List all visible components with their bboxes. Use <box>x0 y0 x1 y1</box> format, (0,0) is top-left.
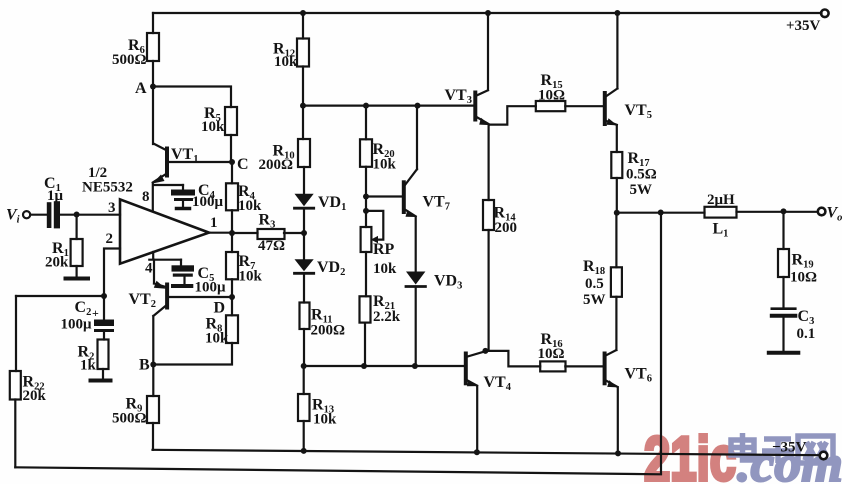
svg-text:VT5: VT5 <box>625 102 652 121</box>
svg-text:10k: 10k <box>373 157 397 173</box>
svg-text:10k: 10k <box>205 331 229 347</box>
svg-text:20k: 20k <box>45 255 69 271</box>
svg-text:8: 8 <box>142 189 150 205</box>
svg-text:4: 4 <box>145 261 153 277</box>
svg-text:C2: C2 <box>75 299 92 318</box>
svg-text:R19: R19 <box>792 252 814 271</box>
svg-text:R3: R3 <box>259 212 276 231</box>
svg-text:RP: RP <box>373 241 395 258</box>
svg-text:+35V: +35V <box>786 18 821 34</box>
svg-text:10Ω: 10Ω <box>538 346 565 362</box>
svg-text:0.1: 0.1 <box>797 326 816 342</box>
svg-text:1k: 1k <box>80 358 97 374</box>
svg-text:−35V: −35V <box>772 440 807 456</box>
svg-text:2μH: 2μH <box>707 192 735 208</box>
svg-text:100μ: 100μ <box>61 317 93 333</box>
svg-text:D: D <box>214 300 226 317</box>
svg-text:VT3: VT3 <box>445 87 472 106</box>
svg-text:B: B <box>139 357 150 374</box>
svg-text:100μ: 100μ <box>192 194 224 210</box>
svg-text:10k: 10k <box>201 119 225 135</box>
svg-text:VD3: VD3 <box>434 273 462 292</box>
svg-text:VT6: VT6 <box>625 366 652 385</box>
svg-text:10Ω: 10Ω <box>538 88 565 104</box>
svg-text:200: 200 <box>495 220 518 236</box>
svg-text:+: + <box>92 306 99 320</box>
svg-text:10k: 10k <box>373 261 397 277</box>
svg-text:L1: L1 <box>713 221 729 240</box>
svg-text:200Ω: 200Ω <box>311 323 346 339</box>
svg-text:VT2: VT2 <box>129 291 156 310</box>
svg-text:A: A <box>135 80 147 97</box>
svg-text:5W: 5W <box>583 292 606 308</box>
svg-text:Vi: Vi <box>6 207 20 226</box>
svg-text:500Ω: 500Ω <box>112 52 147 68</box>
svg-text:C3: C3 <box>798 308 815 327</box>
svg-text:5W: 5W <box>630 182 653 198</box>
svg-text:1: 1 <box>210 215 218 231</box>
svg-text:47Ω: 47Ω <box>258 238 285 254</box>
svg-text:10k: 10k <box>274 54 298 70</box>
svg-text:Vo: Vo <box>827 205 842 224</box>
svg-text:10k: 10k <box>313 412 337 428</box>
svg-text:10k: 10k <box>239 269 263 285</box>
svg-text:2: 2 <box>106 231 114 247</box>
svg-text:500Ω: 500Ω <box>112 411 147 427</box>
svg-text:VT1: VT1 <box>171 146 198 165</box>
svg-text:C: C <box>237 156 249 173</box>
svg-text:100μ: 100μ <box>195 280 227 296</box>
svg-text:3: 3 <box>108 200 116 216</box>
svg-text:0.5Ω: 0.5Ω <box>626 167 657 183</box>
svg-text:20k: 20k <box>23 388 47 404</box>
svg-text:2.2k: 2.2k <box>373 309 401 325</box>
svg-text:R18: R18 <box>583 258 605 277</box>
svg-text:VD2: VD2 <box>317 259 345 278</box>
svg-text:VD1: VD1 <box>318 194 346 213</box>
svg-text:0.5: 0.5 <box>585 276 604 292</box>
svg-text:VT4: VT4 <box>484 374 512 393</box>
svg-text:1μ: 1μ <box>47 188 64 204</box>
svg-text:10Ω: 10Ω <box>790 270 817 286</box>
svg-text:VT7: VT7 <box>423 194 450 213</box>
svg-text:200Ω: 200Ω <box>259 157 294 173</box>
svg-text:NE5532: NE5532 <box>82 180 133 196</box>
